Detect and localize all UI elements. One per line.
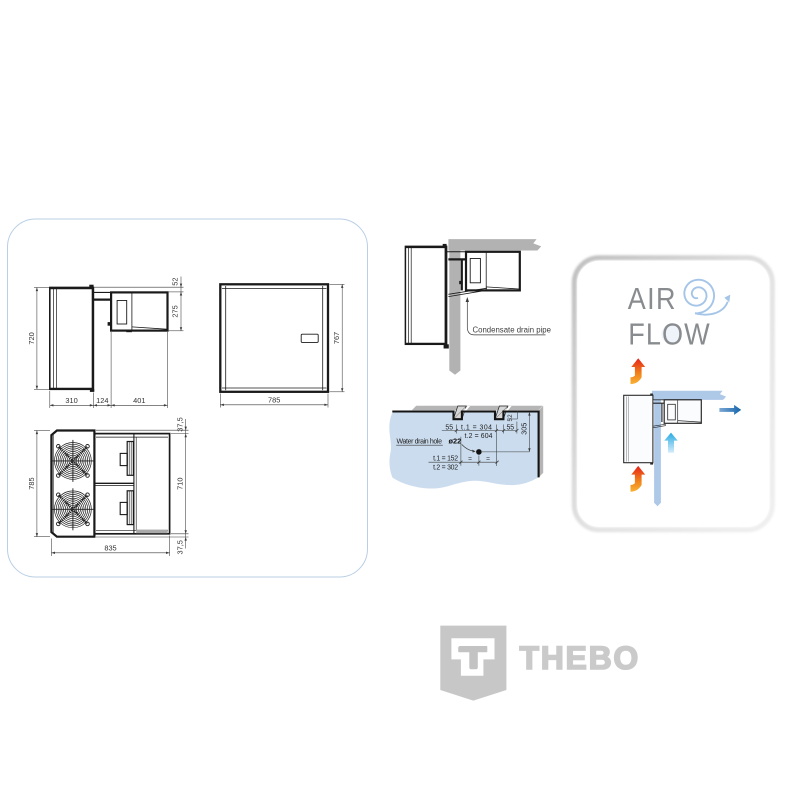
svg-text:785: 785 bbox=[268, 395, 280, 404]
svg-text:401: 401 bbox=[133, 396, 145, 405]
svg-text:t.2 = 604: t.2 = 604 bbox=[465, 433, 493, 440]
svg-text:52: 52 bbox=[507, 414, 514, 422]
svg-text:124: 124 bbox=[96, 396, 108, 405]
svg-text:37,5: 37,5 bbox=[175, 417, 184, 431]
svg-text:ø22: ø22 bbox=[449, 436, 462, 445]
svg-text:THEBO: THEBO bbox=[520, 640, 641, 676]
svg-text:310: 310 bbox=[65, 396, 77, 405]
svg-text:55: 55 bbox=[445, 424, 453, 431]
svg-text:305: 305 bbox=[520, 423, 529, 435]
svg-text:t.1 = 304: t.1 = 304 bbox=[461, 424, 492, 431]
svg-text:Water drain hole: Water drain hole bbox=[397, 438, 443, 445]
svg-text:AIR: AIR bbox=[628, 282, 677, 316]
svg-text:=: = bbox=[468, 456, 472, 463]
svg-text:Condensate drain pipe: Condensate drain pipe bbox=[473, 326, 551, 335]
svg-text:720: 720 bbox=[27, 332, 36, 344]
svg-text:t.2 = 302: t.2 = 302 bbox=[433, 464, 458, 471]
svg-text:FLOW: FLOW bbox=[628, 318, 711, 352]
svg-text:37,5: 37,5 bbox=[175, 540, 184, 554]
svg-text:835: 835 bbox=[104, 543, 116, 552]
svg-text:275: 275 bbox=[171, 305, 180, 317]
svg-text:=: = bbox=[486, 456, 490, 463]
svg-text:55: 55 bbox=[506, 424, 514, 431]
svg-text:t.1 = 152: t.1 = 152 bbox=[433, 455, 458, 462]
svg-text:710: 710 bbox=[175, 478, 184, 490]
svg-text:767: 767 bbox=[332, 332, 341, 344]
svg-text:785: 785 bbox=[27, 477, 36, 489]
svg-text:52: 52 bbox=[171, 277, 180, 285]
